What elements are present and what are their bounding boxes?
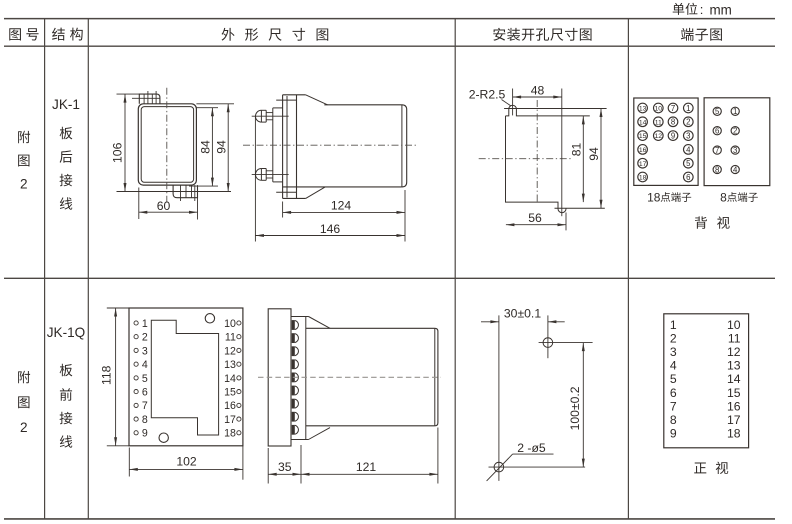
svg-text:18: 18: [639, 175, 647, 182]
svg-text:6: 6: [142, 387, 148, 399]
svg-text:1: 1: [686, 104, 690, 113]
svg-text:14: 14: [639, 119, 647, 126]
svg-text:106: 106: [111, 142, 125, 163]
svg-text:10: 10: [224, 318, 236, 330]
svg-text:5: 5: [715, 107, 720, 116]
svg-text:4: 4: [142, 359, 148, 371]
svg-text:3: 3: [733, 146, 737, 155]
svg-text:11: 11: [225, 332, 236, 344]
svg-text:16: 16: [727, 399, 741, 413]
svg-text:3: 3: [142, 345, 148, 357]
svg-text:17: 17: [727, 413, 741, 427]
svg-text:17: 17: [639, 161, 647, 168]
svg-text:7: 7: [142, 400, 148, 412]
svg-text:15: 15: [727, 386, 741, 400]
svg-text:16: 16: [224, 400, 236, 412]
svg-text:2: 2: [142, 332, 148, 344]
svg-text:146: 146: [320, 222, 341, 236]
svg-text:4: 4: [733, 165, 738, 174]
svg-text:6: 6: [670, 386, 677, 400]
svg-text:12: 12: [727, 345, 741, 359]
svg-text:60: 60: [157, 199, 171, 213]
svg-text:8: 8: [715, 165, 719, 174]
svg-text:102: 102: [176, 454, 197, 468]
svg-text:16: 16: [639, 147, 647, 154]
svg-text:17: 17: [224, 414, 236, 426]
svg-text:1: 1: [670, 318, 677, 332]
svg-text:14: 14: [727, 372, 741, 386]
svg-text:2: 2: [686, 118, 690, 127]
svg-text:15: 15: [639, 133, 647, 140]
svg-text:8: 8: [142, 414, 148, 426]
svg-text:35: 35: [278, 460, 292, 474]
svg-text:124: 124: [331, 198, 352, 212]
svg-text:2: 2: [733, 127, 737, 136]
svg-text:1: 1: [733, 107, 737, 116]
svg-text:6: 6: [715, 127, 719, 136]
svg-text:9: 9: [670, 426, 677, 440]
svg-text:15: 15: [224, 387, 236, 399]
svg-text:5: 5: [142, 373, 148, 385]
svg-text:81: 81: [570, 143, 584, 157]
svg-text:94: 94: [214, 140, 228, 154]
svg-text:4: 4: [686, 145, 691, 154]
svg-text:JK-1: JK-1: [52, 97, 80, 112]
svg-text:2: 2: [20, 176, 28, 191]
svg-text:13: 13: [727, 359, 741, 373]
svg-text:10: 10: [727, 318, 741, 332]
svg-text:JK-1Q: JK-1Q: [47, 325, 86, 340]
svg-text:11: 11: [655, 119, 662, 126]
svg-text:12: 12: [224, 345, 236, 357]
svg-text:9: 9: [671, 132, 675, 141]
svg-text:7: 7: [671, 104, 675, 113]
svg-text:7: 7: [670, 399, 677, 413]
svg-text:4: 4: [670, 359, 677, 373]
svg-text:18: 18: [224, 428, 236, 440]
svg-text:10: 10: [655, 106, 663, 113]
svg-text:18: 18: [647, 190, 661, 204]
svg-text:48: 48: [531, 84, 545, 98]
svg-text:7: 7: [715, 146, 719, 155]
svg-text:2-R2.5: 2-R2.5: [469, 88, 506, 102]
svg-text:3: 3: [686, 132, 690, 141]
svg-text:5: 5: [686, 159, 691, 168]
svg-text:8: 8: [671, 118, 675, 127]
svg-text:2: 2: [670, 332, 677, 346]
svg-text:12: 12: [655, 133, 663, 140]
svg-text:8: 8: [720, 190, 727, 204]
svg-text:1: 1: [142, 318, 148, 330]
svg-text:84: 84: [198, 140, 212, 154]
svg-text:94: 94: [587, 147, 601, 161]
svg-text:100±0.2: 100±0.2: [568, 386, 582, 430]
svg-text:mm: mm: [710, 2, 732, 17]
svg-text::: :: [700, 2, 704, 17]
svg-text:2 -ø5: 2 -ø5: [517, 441, 546, 455]
svg-text:121: 121: [356, 460, 377, 474]
svg-text:3: 3: [670, 345, 677, 359]
svg-text:9: 9: [142, 428, 148, 440]
svg-text:6: 6: [686, 173, 690, 182]
svg-text:11: 11: [728, 332, 741, 346]
svg-text:18: 18: [727, 426, 741, 440]
svg-text:8: 8: [670, 413, 677, 427]
svg-text:13: 13: [224, 359, 236, 371]
svg-text:14: 14: [224, 373, 236, 385]
svg-text:30±0.1: 30±0.1: [504, 306, 541, 320]
svg-text:56: 56: [528, 211, 542, 225]
svg-text:118: 118: [100, 365, 114, 385]
svg-text:2: 2: [20, 420, 28, 435]
svg-text:13: 13: [639, 106, 647, 113]
svg-text:5: 5: [670, 372, 677, 386]
